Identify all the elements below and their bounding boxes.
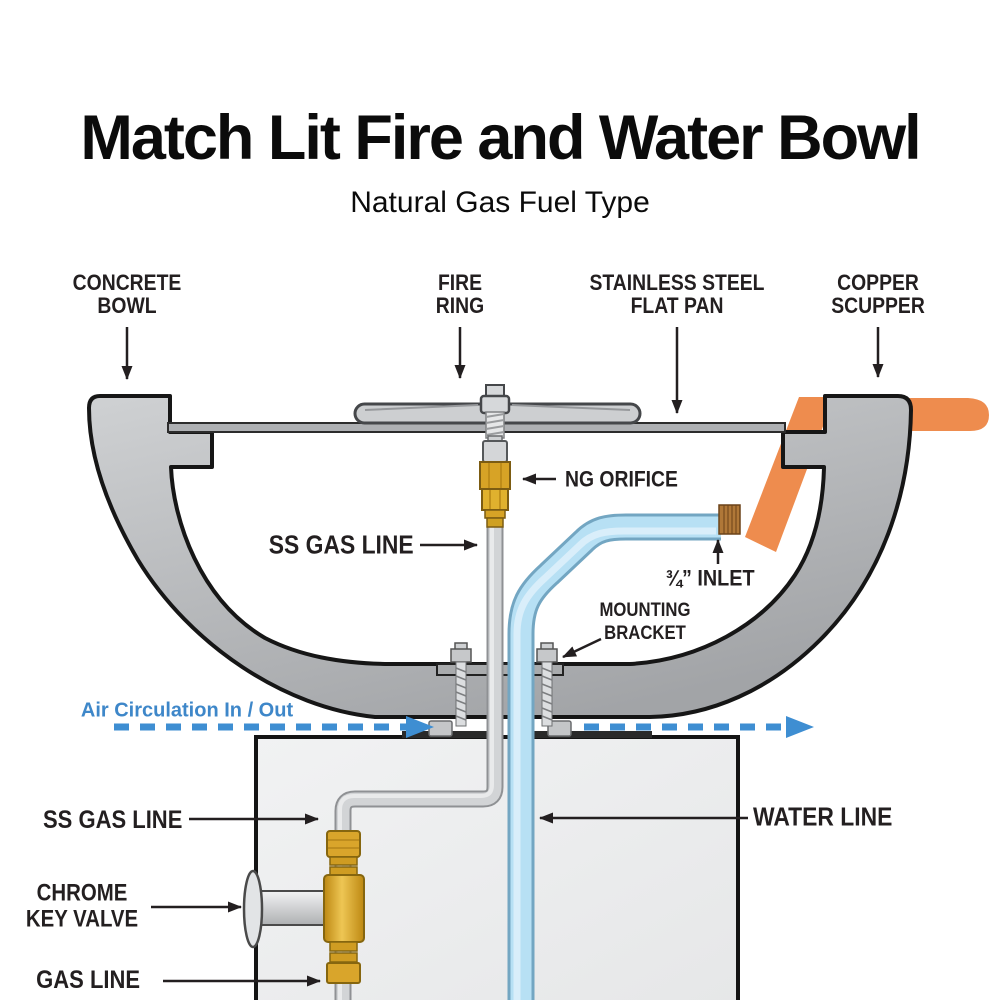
pedestal-pad-right <box>528 731 652 738</box>
label-flat-pan: STAINLESS STEEL FLAT PAN <box>590 271 765 317</box>
label-gas-line: GAS LINE <box>36 967 140 993</box>
label-fire-ring: FIRE RING <box>436 271 484 317</box>
label-ng-orifice: NG ORIFICE <box>565 467 678 490</box>
label-inlet: ¾” INLET <box>665 566 754 589</box>
label-air-circulation: Air Circulation In / Out <box>81 701 293 722</box>
standoff-left <box>429 721 452 736</box>
label-copper-scupper: COPPER SCUPPER <box>831 271 925 317</box>
label-mounting-bracket: MOUNTING BRACKET <box>599 599 690 645</box>
label-ss-gas-line-lower: SS GAS LINE <box>43 807 182 833</box>
label-concrete-bowl: CONCRETE BOWL <box>73 271 182 317</box>
page-title: Match Lit Fire and Water Bowl <box>80 102 919 174</box>
inlet-nipple <box>719 505 740 534</box>
label-ss-gas-line-upper: SS GAS LINE <box>269 531 414 558</box>
ng-orifice-fitting <box>480 436 510 527</box>
label-chrome-key-valve: CHROME KEY VALVE <box>26 881 138 934</box>
page-subtitle: Natural Gas Fuel Type <box>350 186 650 220</box>
label-water-line: WATER LINE <box>753 803 892 830</box>
diagram-canvas: Match Lit Fire and Water Bowl Natural Ga… <box>0 0 1000 1000</box>
